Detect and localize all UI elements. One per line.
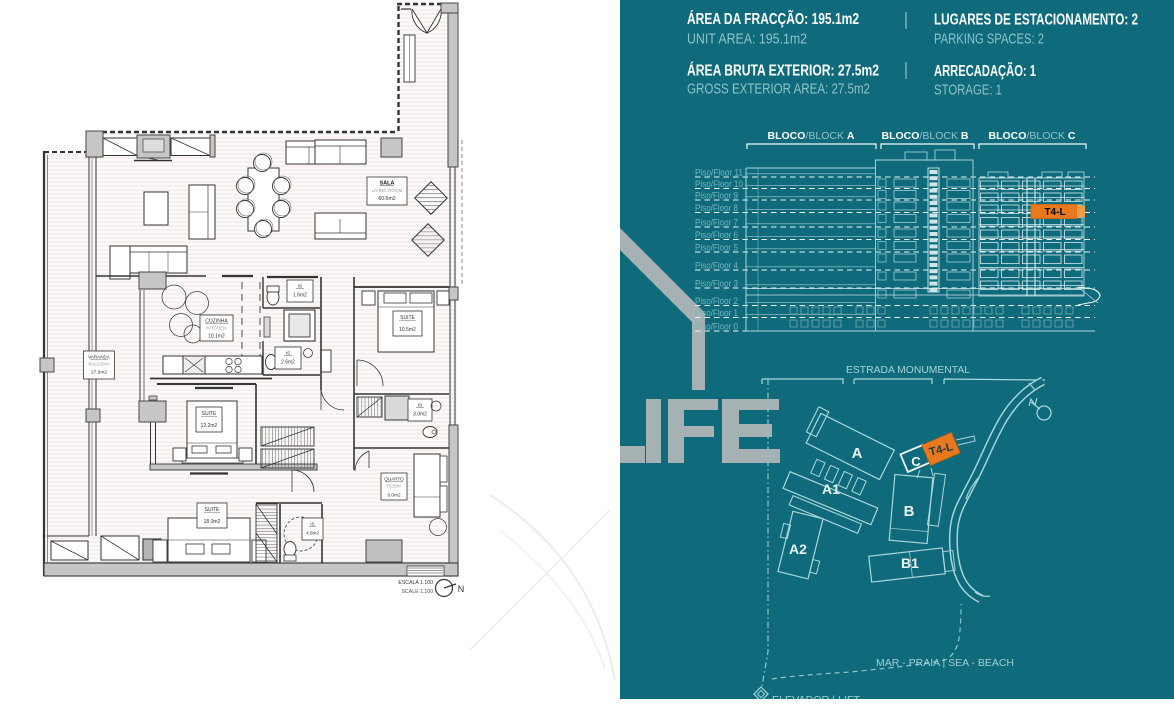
svg-text:Piso/Floor 7: Piso/Floor 7 xyxy=(695,218,738,228)
svg-text:LUGARES DE ESTACIONAMENTO: 2: LUGARES DE ESTACIONAMENTO: 2 xyxy=(934,12,1138,29)
svg-text:BLOCO/BLOCK B: BLOCO/BLOCK B xyxy=(882,130,969,142)
svg-text:GROSS EXTERIOR AREA: 27.5m2: GROSS EXTERIOR AREA: 27.5m2 xyxy=(687,82,870,98)
svg-text:3.0m2: 3.0m2 xyxy=(413,412,427,418)
svg-text:UNIT AREA: 195.1m2: UNIT AREA: 195.1m2 xyxy=(687,32,807,48)
svg-text:Piso/Floor 5: Piso/Floor 5 xyxy=(695,243,738,253)
svg-text:PARKING SPACES: 2: PARKING SPACES: 2 xyxy=(934,32,1044,48)
svg-text:10.1m2: 10.1m2 xyxy=(208,334,225,340)
svg-text:4.8m2: 4.8m2 xyxy=(306,531,319,536)
svg-text:Piso/Floor 10: Piso/Floor 10 xyxy=(695,179,743,189)
svg-text:10.5m2: 10.5m2 xyxy=(399,327,416,333)
svg-text:VARANDA: VARANDA xyxy=(88,355,111,360)
svg-text:KITCHEN: KITCHEN xyxy=(206,326,226,331)
svg-text:60.6m2: 60.6m2 xyxy=(378,196,395,202)
svg-text:Piso/Floor 8: Piso/Floor 8 xyxy=(695,203,738,213)
svg-text:Piso/Floor 11: Piso/Floor 11 xyxy=(695,168,743,178)
svg-text:A1: A1 xyxy=(822,481,840,497)
svg-text:2.6m2: 2.6m2 xyxy=(281,360,295,366)
svg-text:Piso/Floor 0: Piso/Floor 0 xyxy=(695,322,738,332)
svg-text:T4-L: T4-L xyxy=(1044,207,1065,218)
svg-text:ÁREA DA FRACÇÃO: 195.1m2: ÁREA DA FRACÇÃO: 195.1m2 xyxy=(687,10,859,28)
svg-text:12.2m2: 12.2m2 xyxy=(201,423,218,429)
svg-text:Piso/Floor 9: Piso/Floor 9 xyxy=(695,191,738,201)
svg-text:ROOM: ROOM xyxy=(387,484,401,489)
svg-text:BALCONY: BALCONY xyxy=(89,362,110,367)
svg-text:27.5m2: 27.5m2 xyxy=(91,370,107,376)
svg-text:18.0m2: 18.0m2 xyxy=(204,519,221,525)
svg-text:LIVING ROOM: LIVING ROOM xyxy=(372,188,403,193)
svg-text:SCALE 1.100: SCALE 1.100 xyxy=(402,589,434,595)
svg-text:N: N xyxy=(458,584,465,594)
svg-text:B1: B1 xyxy=(901,555,919,571)
svg-text:Piso/Floor 3: Piso/Floor 3 xyxy=(695,279,738,289)
svg-text:BLOCO/BLOCK C: BLOCO/BLOCK C xyxy=(989,130,1076,142)
svg-text:ARRECADAÇÃO: 1: ARRECADAÇÃO: 1 xyxy=(934,62,1036,80)
svg-text:Piso/Floor 4: Piso/Floor 4 xyxy=(695,261,738,271)
svg-text:1.6m2: 1.6m2 xyxy=(293,293,307,299)
svg-text:QUARTO: QUARTO xyxy=(384,477,404,482)
svg-text:Piso/Floor 6: Piso/Floor 6 xyxy=(695,230,738,240)
svg-text:STORAGE: 1: STORAGE: 1 xyxy=(934,83,1002,99)
svg-text:BLOCO/BLOCK A: BLOCO/BLOCK A xyxy=(768,130,855,142)
svg-text:ESCALA 1.100: ESCALA 1.100 xyxy=(398,580,433,586)
svg-text:Piso/Floor 2: Piso/Floor 2 xyxy=(695,296,738,306)
svg-text:MAR - PRAIA | SEA - BEACH: MAR - PRAIA | SEA - BEACH xyxy=(876,657,1014,669)
svg-text:ÁREA BRUTA EXTERIOR: 27.5m2: ÁREA BRUTA EXTERIOR: 27.5m2 xyxy=(687,63,879,80)
svg-text:C: C xyxy=(911,454,921,469)
svg-text:9.0m2: 9.0m2 xyxy=(387,493,401,499)
svg-text:ESTRADA MONUMENTAL: ESTRADA MONUMENTAL xyxy=(846,364,970,376)
svg-text:Piso/Floor 1: Piso/Floor 1 xyxy=(695,308,738,318)
svg-text:A: A xyxy=(852,445,863,462)
svg-text:B: B xyxy=(904,503,915,520)
svg-text:A2: A2 xyxy=(789,541,807,557)
